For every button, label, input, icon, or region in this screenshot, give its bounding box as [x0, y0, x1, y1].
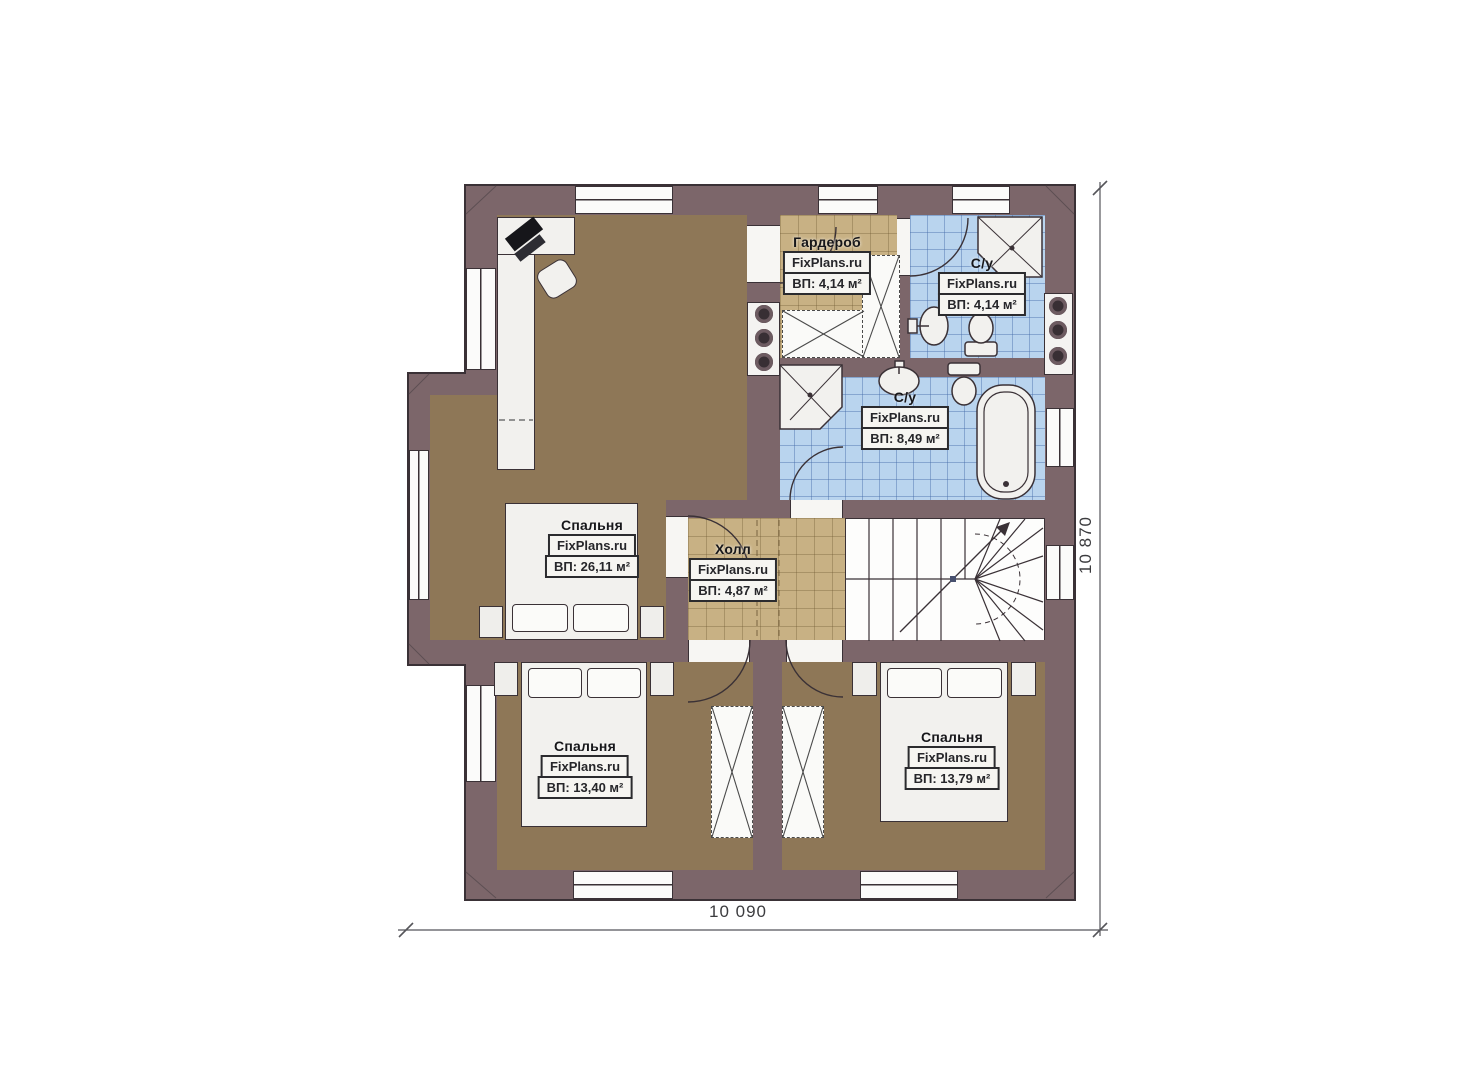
room-area: ВП: 4,14 м²	[783, 272, 871, 295]
room-name: Спальня	[921, 729, 983, 745]
stairs	[845, 518, 1045, 642]
room-name: Спальня	[561, 517, 623, 533]
window	[573, 871, 673, 899]
room-label-bedroom-right: Спальня FixPlans.ru ВП: 13,79 м²	[905, 729, 1000, 790]
nightstand	[852, 662, 877, 696]
door-opening-bathroom-mid	[790, 500, 843, 518]
floor-plan: Спальня FixPlans.ru ВП: 26,11 м² Гардеро…	[0, 0, 1473, 1080]
watermark: FixPlans.ru	[938, 272, 1026, 295]
wardrobe-unit	[782, 310, 865, 358]
watermark: FixPlans.ru	[908, 746, 996, 769]
room-label-hall: Холл FixPlans.ru ВП: 4,87 м²	[689, 541, 777, 602]
dimension-height: 10 870	[1076, 516, 1096, 574]
room-area: ВП: 4,87 м²	[689, 579, 777, 602]
room-label-bedroom-left: Спальня FixPlans.ru ВП: 13,40 м²	[538, 738, 633, 799]
window	[952, 186, 1010, 214]
vent-hole-icon	[755, 305, 773, 323]
room-area: ВП: 13,40 м²	[538, 776, 633, 799]
wall-wardrobe-bath-divider	[747, 358, 1045, 377]
closet	[782, 706, 824, 838]
window	[409, 450, 429, 600]
room-area: ВП: 13,79 м²	[905, 767, 1000, 790]
pillow	[587, 668, 641, 698]
vent-hole-icon	[755, 329, 773, 347]
wall-hall-left	[666, 578, 688, 645]
vent-hole-icon	[1049, 297, 1067, 315]
room-label-wardrobe: Гардероб FixPlans.ru ВП: 4,14 м²	[783, 234, 871, 295]
vent-hole-icon	[1049, 347, 1067, 365]
room-area: ВП: 8,49 м²	[861, 427, 949, 450]
door-opening-bedroom-right	[786, 640, 843, 662]
room-name: Спальня	[554, 738, 616, 754]
pillow	[528, 668, 582, 698]
window	[1046, 545, 1074, 600]
window	[1046, 408, 1074, 467]
nightstand	[1011, 662, 1036, 696]
nightstand	[479, 606, 503, 638]
wall-bedrooms-divider	[753, 662, 782, 870]
watermark: FixPlans.ru	[548, 534, 636, 557]
room-area: ВП: 26,11 м²	[545, 555, 639, 578]
room-label-bedroom-master: Спальня FixPlans.ru ВП: 26,11 м²	[545, 517, 639, 578]
vent-hole-icon	[1049, 321, 1067, 339]
closet	[711, 706, 753, 838]
nightstand	[640, 606, 664, 638]
nightstand	[650, 662, 674, 696]
window	[860, 871, 958, 899]
window	[466, 268, 496, 370]
room-label-bathroom-mid: С/у FixPlans.ru ВП: 8,49 м²	[861, 389, 949, 450]
window	[818, 186, 878, 214]
watermark: FixPlans.ru	[541, 755, 629, 778]
door-opening-bedroom-left	[688, 640, 750, 662]
room-label-bathroom-top: С/у FixPlans.ru ВП: 4,14 м²	[938, 255, 1026, 316]
dimension-width: 10 090	[709, 902, 767, 922]
window	[575, 186, 673, 214]
room-area: ВП: 4,14 м²	[938, 293, 1026, 316]
pillow	[512, 604, 568, 632]
door-opening-wardrobe	[747, 225, 780, 283]
pillow	[947, 668, 1002, 698]
wall-bottom	[465, 870, 1075, 900]
room-name: Холл	[715, 541, 751, 557]
nightstand	[494, 662, 518, 696]
door-opening-bedroom-master	[666, 516, 688, 578]
pillow	[887, 668, 942, 698]
wall-bedrooms-top-left	[430, 640, 688, 662]
room-name: С/у	[971, 255, 993, 271]
room-name: С/у	[894, 389, 916, 405]
wall-bedrooms-top-right	[843, 640, 1045, 662]
vent-hole-icon	[755, 353, 773, 371]
watermark: FixPlans.ru	[783, 251, 871, 274]
wall-bedrooms-top-mid	[750, 640, 786, 662]
watermark: FixPlans.ru	[689, 558, 777, 581]
window	[466, 685, 496, 782]
watermark: FixPlans.ru	[861, 406, 949, 429]
room-name: Гардероб	[793, 234, 861, 250]
pillow	[573, 604, 629, 632]
